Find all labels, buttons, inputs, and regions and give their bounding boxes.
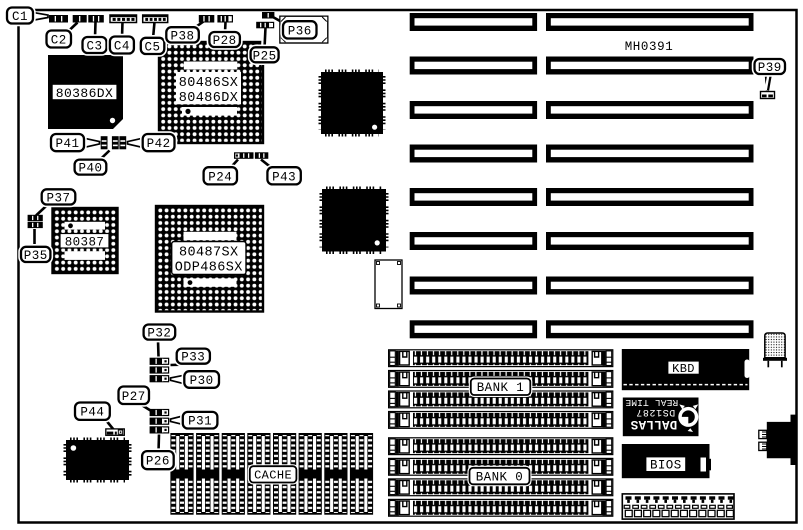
svg-text:80386DX: 80386DX	[56, 86, 113, 101]
svg-text:P44: P44	[80, 406, 104, 420]
svg-text:80487SX: 80487SX	[179, 246, 239, 261]
svg-text:C5: C5	[145, 40, 161, 54]
svg-text:P30: P30	[190, 374, 214, 388]
svg-text:P40: P40	[78, 162, 102, 176]
svg-text:P24: P24	[208, 170, 232, 184]
svg-text:P41: P41	[55, 137, 79, 151]
svg-text:80486SX: 80486SX	[179, 76, 239, 91]
svg-text:MH0391: MH0391	[625, 40, 674, 54]
svg-text:P36: P36	[288, 24, 312, 38]
svg-text:80486DX: 80486DX	[179, 91, 239, 106]
svg-text:P35: P35	[24, 249, 48, 263]
svg-text:P26: P26	[146, 455, 170, 469]
svg-text:C3: C3	[86, 40, 102, 54]
svg-text:P27: P27	[122, 390, 146, 404]
svg-text:P32: P32	[147, 327, 171, 341]
svg-text:P25: P25	[253, 49, 277, 63]
svg-text:BANK 0: BANK 0	[476, 471, 523, 485]
svg-text:P42: P42	[147, 137, 171, 151]
svg-text:P38: P38	[171, 29, 195, 43]
svg-text:P28: P28	[213, 34, 237, 48]
svg-text:C4: C4	[114, 40, 130, 54]
svg-text:P37: P37	[46, 191, 70, 205]
svg-text:P39: P39	[758, 61, 782, 75]
svg-text:P31: P31	[188, 415, 212, 429]
svg-text:C1: C1	[12, 10, 28, 24]
svg-text:C2: C2	[51, 34, 67, 48]
svg-text:REAL TIME: REAL TIME	[625, 397, 678, 408]
svg-text:P43: P43	[272, 170, 296, 184]
svg-text:BANK 1: BANK 1	[477, 381, 524, 395]
svg-text:ODP486SX: ODP486SX	[175, 261, 243, 276]
svg-text:BIOS: BIOS	[650, 459, 682, 473]
svg-text:CACHE: CACHE	[254, 469, 292, 483]
svg-text:P33: P33	[181, 351, 205, 365]
svg-text:DALLAS: DALLAS	[630, 417, 677, 431]
svg-text:80387: 80387	[65, 235, 105, 249]
svg-text:KBD: KBD	[672, 362, 695, 376]
